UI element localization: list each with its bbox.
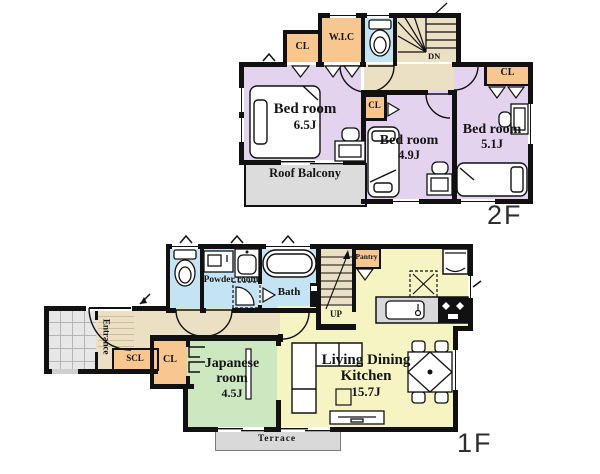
room-toilet-2f	[365, 16, 393, 62]
floor1-label: 1F	[457, 428, 493, 459]
entrance-porch-tiles	[48, 309, 96, 370]
pantry-label: Pantry	[352, 253, 381, 261]
floor-plan: Bed room 6.5J Bed room 4.9J Bed room 5.1…	[0, 0, 600, 474]
entrance-label: Entrance	[101, 311, 111, 363]
japanese-room-label: Japanese room 4.5J	[190, 356, 274, 401]
terrace-label: Terrace	[215, 434, 339, 444]
bedroom-c-label: Bed room 5.1J	[452, 122, 532, 152]
wic-label: W.I.C	[320, 33, 363, 44]
room-hall-2f	[364, 64, 456, 92]
room-bath	[261, 248, 317, 309]
entrance-arrow	[140, 297, 147, 304]
cl-left-2f-label: CL	[285, 42, 320, 53]
ldk-label: Living Dining Kitchen 15.7J	[305, 352, 427, 401]
roof-balcony-label: Roof Balcony	[255, 167, 355, 181]
stairs-up-label: UP	[319, 310, 353, 320]
cl-1f-label: CL	[153, 355, 187, 366]
cl-mid-2f-label: CL	[362, 101, 387, 111]
scl-label: SCL	[114, 354, 156, 364]
powder-room-label: Powder room	[202, 275, 260, 285]
cl-right-2f-label: CL	[486, 68, 529, 79]
bath-label: Bath	[264, 287, 314, 299]
bedroom-b-label: Bed room 4.9J	[364, 133, 454, 163]
floor2-label: 2F	[487, 200, 523, 231]
stairs-dn-label: DN	[428, 52, 454, 61]
room-toilet-1f	[169, 248, 201, 309]
bedroom-a-label: Bed room 6.5J	[255, 101, 355, 133]
